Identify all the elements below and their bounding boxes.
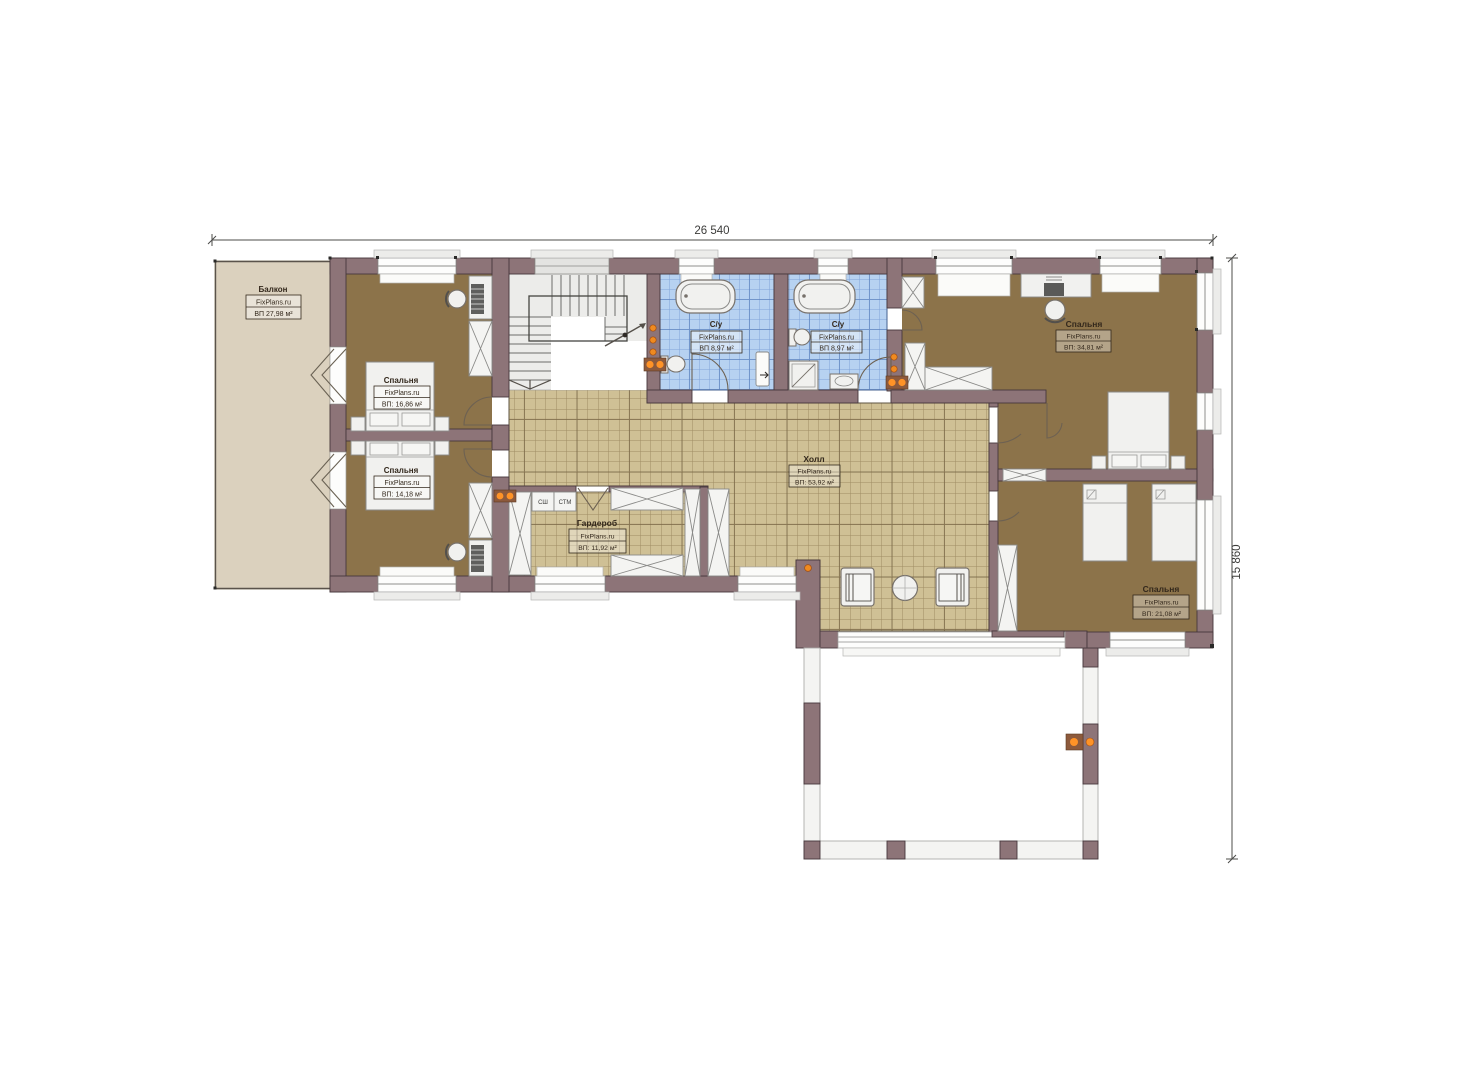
svg-text:ВП: 11,92 м²: ВП: 11,92 м² [578, 545, 617, 552]
svg-text:Балкон: Балкон [259, 285, 288, 294]
svg-text:Спальня: Спальня [1143, 584, 1180, 594]
svg-text:Холл: Холл [803, 454, 824, 464]
svg-text:Спальня: Спальня [384, 376, 419, 385]
svg-text:FixPlans.ru: FixPlans.ru [1145, 600, 1179, 607]
svg-text:FixPlans.ru: FixPlans.ru [699, 335, 734, 342]
svg-text:СШ: СШ [538, 500, 548, 506]
svg-text:ВП 27,98 м²: ВП 27,98 м² [254, 311, 293, 318]
svg-text:ВП: 14,18 м²: ВП: 14,18 м² [382, 492, 423, 499]
svg-text:ВП: 53,92 м²: ВП: 53,92 м² [795, 480, 835, 487]
svg-text:Спальня: Спальня [384, 466, 419, 475]
svg-text:С/у: С/у [832, 320, 845, 329]
svg-text:ВП: 21,08 м²: ВП: 21,08 м² [1142, 611, 1182, 618]
svg-text:FixPlans.ru: FixPlans.ru [581, 534, 615, 541]
svg-text:FixPlans.ru: FixPlans.ru [384, 390, 419, 397]
svg-text:FixPlans.ru: FixPlans.ru [1067, 334, 1101, 341]
svg-text:15 860: 15 860 [1231, 544, 1243, 579]
svg-text:FixPlans.ru: FixPlans.ru [384, 480, 419, 487]
svg-text:FixPlans.ru: FixPlans.ru [819, 335, 854, 342]
svg-text:FixPlans.ru: FixPlans.ru [256, 300, 291, 307]
svg-text:ВП: 16,86 м²: ВП: 16,86 м² [382, 402, 423, 409]
svg-text:ВП 8,97 м²: ВП 8,97 м² [819, 346, 854, 353]
svg-text:FixPlans.ru: FixPlans.ru [798, 469, 832, 476]
svg-text:С/у: С/у [710, 320, 723, 329]
svg-text:Гардероб: Гардероб [577, 518, 617, 528]
svg-text:СТМ: СТМ [559, 500, 572, 506]
svg-text:26 540: 26 540 [694, 225, 729, 237]
svg-text:Спальня: Спальня [1066, 319, 1103, 329]
svg-text:ВП 8,97 м²: ВП 8,97 м² [699, 346, 734, 353]
svg-text:ВП: 34,81 м²: ВП: 34,81 м² [1064, 345, 1104, 352]
